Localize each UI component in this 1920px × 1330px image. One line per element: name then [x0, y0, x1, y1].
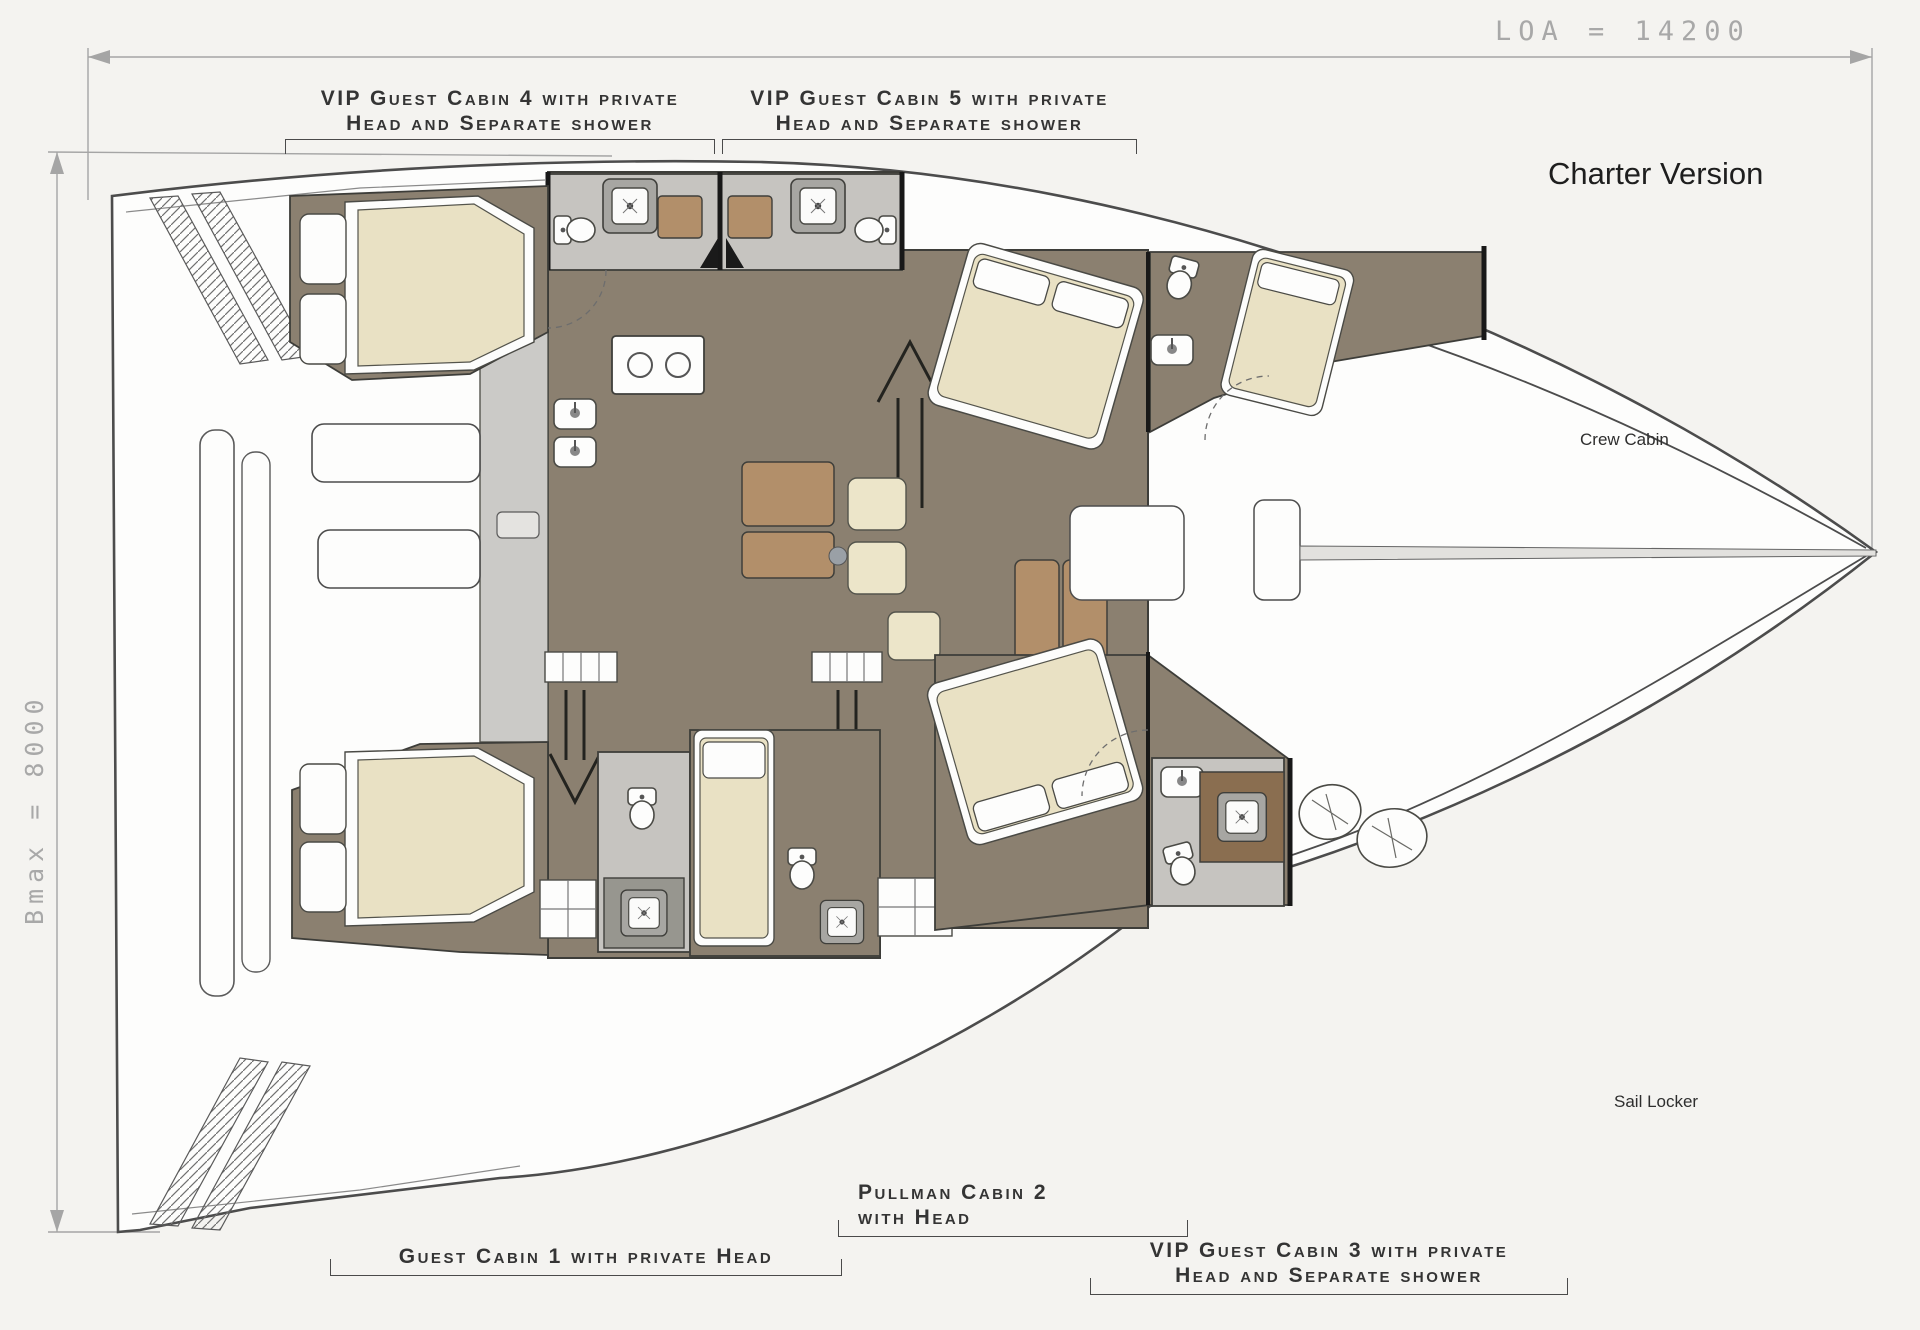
- pillow: [300, 842, 346, 912]
- cabin2-label-line1: Pullman Cabin 2: [838, 1180, 1188, 1205]
- vanity-cabinet: [658, 196, 702, 238]
- chart-table: [1070, 506, 1184, 600]
- cabin1-callout: Guest Cabin 1 with private Head: [330, 1244, 842, 1276]
- bed: [358, 756, 524, 918]
- sink-icon: [1151, 335, 1193, 365]
- head-cabin4: [548, 174, 902, 270]
- shower-icon: [1218, 793, 1267, 842]
- toilet-icon: [788, 848, 816, 889]
- cockpit-bench: [318, 530, 480, 588]
- shower-icon: [603, 179, 657, 233]
- vanity-cabinet: [728, 196, 772, 238]
- floorplan-canvas: LOA = 14200 Bmax = 8000 Charter Version …: [0, 0, 1920, 1330]
- loa-dimension-label: LOA = 14200: [1495, 16, 1751, 47]
- cabin5-label-line1: VIP Guest Cabin 5 with private: [722, 86, 1137, 111]
- cabin4-callout: VIP Guest Cabin 4 with private Head and …: [285, 86, 715, 154]
- pillow: [300, 214, 346, 284]
- cabin4-label-line1: VIP Guest Cabin 4 with private: [285, 86, 715, 111]
- bmax-dimension-label: Bmax = 8000: [20, 693, 49, 925]
- sink-icon: [1161, 767, 1203, 797]
- cabin1: [292, 742, 742, 955]
- mast-base: [1254, 500, 1300, 600]
- toilet-icon: [628, 788, 656, 829]
- toilet-icon: [855, 216, 896, 244]
- sail-locker-label: Sail Locker: [1614, 1092, 1698, 1112]
- cabin4-label-line2: Head and Separate shower: [285, 111, 715, 136]
- cabin2-callout: Pullman Cabin 2 with Head: [838, 1180, 1188, 1237]
- pillow: [300, 294, 346, 364]
- shower-icon: [621, 890, 667, 936]
- shower-icon: [791, 179, 845, 233]
- cockpit-bench: [312, 424, 480, 482]
- sink-icon: [554, 437, 596, 467]
- cabin5-label-line2: Head and Separate shower: [722, 111, 1137, 136]
- toilet-icon: [554, 216, 595, 244]
- page-title: Charter Version: [1548, 156, 1763, 192]
- catamaran-floorplan-drawing: [0, 0, 1920, 1330]
- dinette-table: [742, 462, 834, 526]
- bed: [358, 204, 524, 366]
- crew-cabin-label: Crew Cabin: [1580, 430, 1669, 450]
- cabin1-label-line1: Guest Cabin 1 with private Head: [330, 1244, 842, 1269]
- cockpit-seat: [497, 512, 539, 538]
- pillow: [703, 742, 765, 778]
- cabin5-leader-bracket: [722, 139, 1137, 154]
- cabin3-callout: VIP Guest Cabin 3 with private Head and …: [1090, 1238, 1568, 1295]
- cabin3-label-line1: VIP Guest Cabin 3 with private: [1090, 1238, 1568, 1263]
- shower-icon: [820, 900, 863, 943]
- sink-icon: [554, 399, 596, 429]
- dinette-table: [742, 532, 834, 578]
- cabin5-callout: VIP Guest Cabin 5 with private Head and …: [722, 86, 1137, 154]
- seat-cushion: [888, 612, 940, 660]
- seat-cushion: [848, 478, 906, 530]
- cabin4-leader-bracket: [285, 139, 715, 154]
- seat-cushion: [848, 542, 906, 594]
- pillow: [300, 764, 346, 834]
